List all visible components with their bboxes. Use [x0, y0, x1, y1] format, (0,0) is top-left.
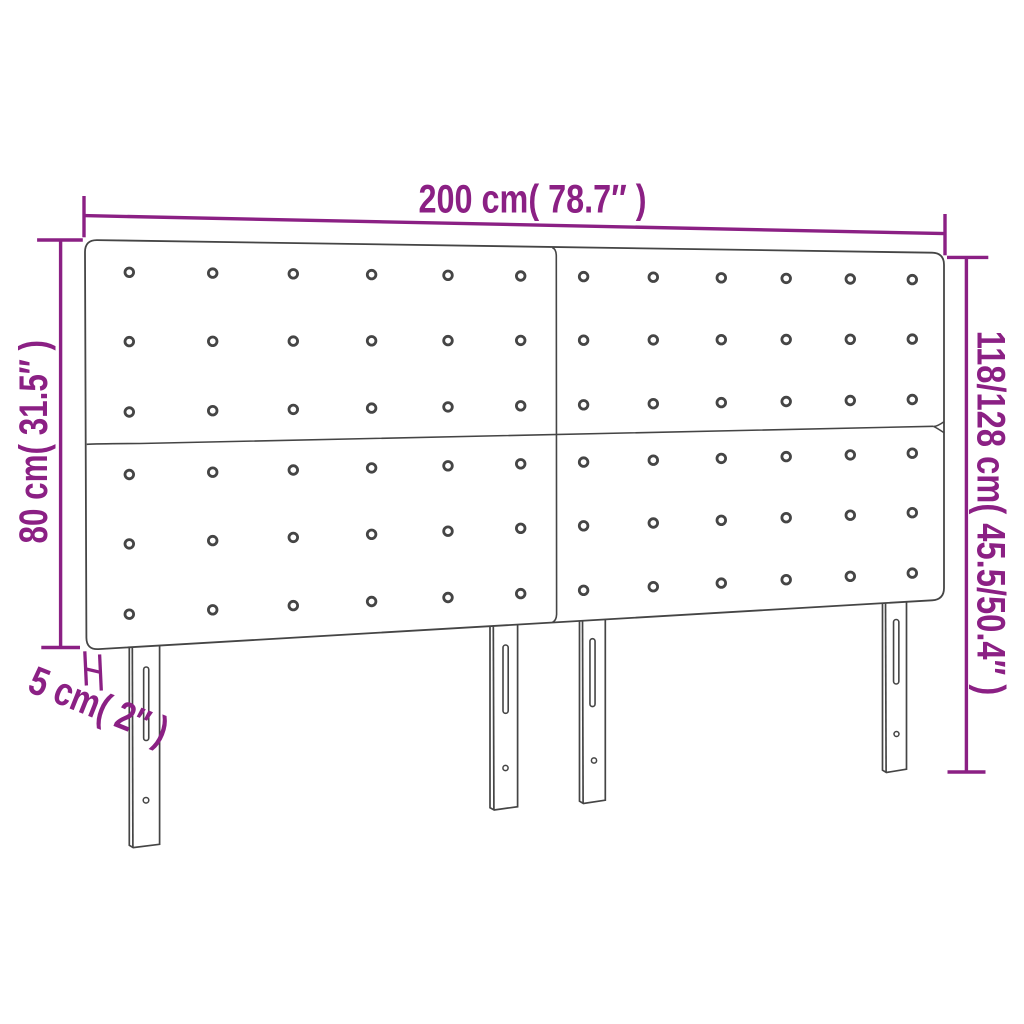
- svg-text:118/128 cm( 45.5/50.4″ ): 118/128 cm( 45.5/50.4″ ): [968, 331, 1012, 696]
- svg-text:80 cm( 31.5″ ): 80 cm( 31.5″ ): [12, 340, 56, 544]
- svg-text:200 cm( 78.7″ ): 200 cm( 78.7″ ): [419, 177, 647, 221]
